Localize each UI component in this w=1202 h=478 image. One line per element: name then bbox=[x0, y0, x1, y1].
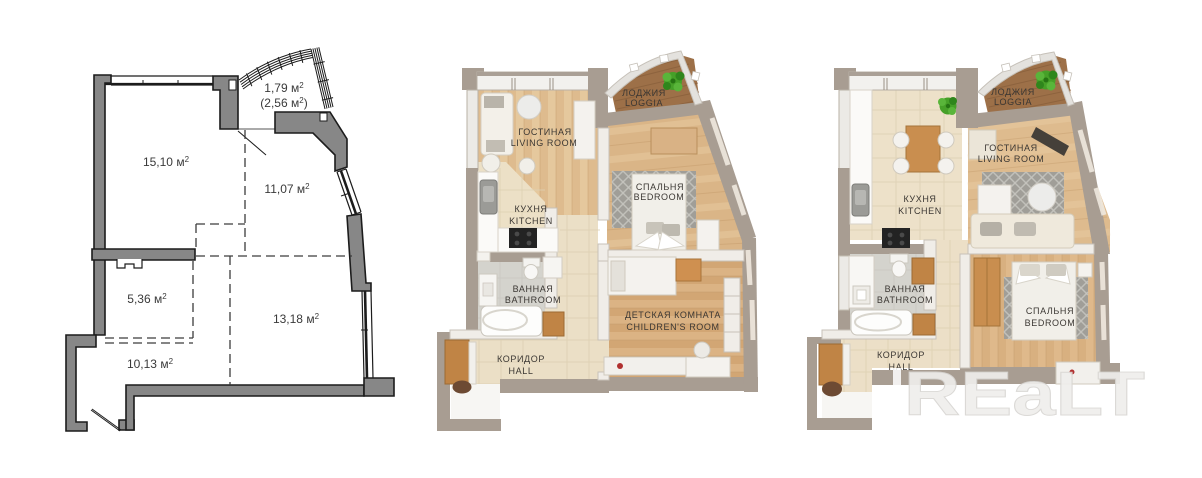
svg-text:REaLT: REaLT bbox=[904, 360, 1145, 429]
svg-text:(2,56 м2): (2,56 м2) bbox=[260, 96, 307, 110]
svg-text:LIVING ROOM: LIVING ROOM bbox=[978, 154, 1045, 164]
svg-text:ДЕТСКАЯ КОМНАТА: ДЕТСКАЯ КОМНАТА bbox=[625, 310, 721, 320]
svg-text:KITCHEN: KITCHEN bbox=[898, 206, 942, 216]
svg-text:10,13 м2: 10,13 м2 bbox=[127, 357, 174, 371]
svg-text:LOGGIA: LOGGIA bbox=[994, 97, 1032, 107]
svg-text:СПАЛЬНЯ: СПАЛЬНЯ bbox=[1026, 306, 1074, 316]
svg-text:CHILDREN'S ROOM: CHILDREN'S ROOM bbox=[626, 322, 719, 332]
svg-text:BEDROOM: BEDROOM bbox=[634, 192, 685, 202]
svg-text:LOGGIA: LOGGIA bbox=[625, 98, 663, 108]
svg-text:ГОСТИНАЯ: ГОСТИНАЯ bbox=[984, 143, 1037, 153]
svg-text:5,36 м2: 5,36 м2 bbox=[127, 292, 167, 306]
svg-text:BATHROOM: BATHROOM bbox=[505, 295, 561, 305]
svg-text:КОРИДОР: КОРИДОР bbox=[877, 350, 925, 360]
svg-text:LIVING ROOM: LIVING ROOM bbox=[511, 138, 578, 148]
svg-text:КУХНЯ: КУХНЯ bbox=[903, 194, 936, 204]
svg-text:ВАННАЯ: ВАННАЯ bbox=[513, 284, 554, 294]
svg-text:ЛОДЖИЯ: ЛОДЖИЯ bbox=[622, 88, 666, 98]
svg-text:КОРИДОР: КОРИДОР bbox=[497, 354, 545, 364]
svg-text:BATHROOM: BATHROOM bbox=[877, 295, 933, 305]
svg-text:13,18 м2: 13,18 м2 bbox=[273, 312, 320, 326]
svg-text:15,10 м2: 15,10 м2 bbox=[143, 155, 190, 169]
svg-text:ЛОДЖИЯ: ЛОДЖИЯ bbox=[991, 87, 1035, 97]
svg-text:BEDROOM: BEDROOM bbox=[1025, 318, 1076, 328]
svg-text:ГОСТИНАЯ: ГОСТИНАЯ bbox=[518, 127, 571, 137]
svg-text:KITCHEN: KITCHEN bbox=[509, 216, 553, 226]
svg-text:КУХНЯ: КУХНЯ bbox=[514, 204, 547, 214]
svg-text:11,07 м2: 11,07 м2 bbox=[264, 182, 310, 196]
svg-text:HALL: HALL bbox=[509, 366, 534, 376]
svg-text:ВАННАЯ: ВАННАЯ bbox=[885, 284, 926, 294]
svg-text:1,79 м2: 1,79 м2 bbox=[264, 81, 304, 95]
svg-text:СПАЛЬНЯ: СПАЛЬНЯ bbox=[636, 182, 684, 192]
